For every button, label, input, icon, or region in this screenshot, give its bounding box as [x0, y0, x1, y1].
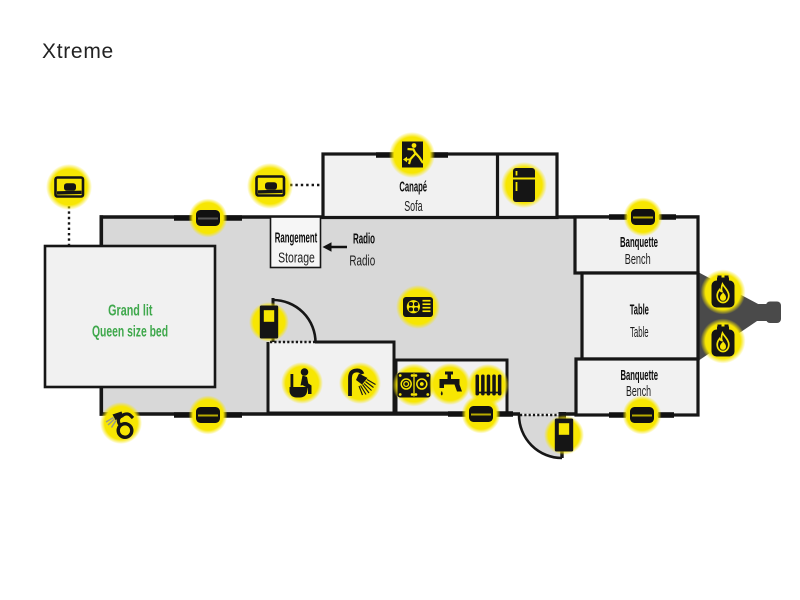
svg-text:Sofa: Sofa [404, 198, 422, 215]
svg-text:Grand lit: Grand lit [108, 301, 153, 319]
svg-text:Table: Table [630, 301, 649, 319]
svg-text:Radio: Radio [353, 230, 375, 247]
svg-text:Queen size bed: Queen size bed [92, 322, 168, 340]
svg-text:Xtreme: Xtreme [42, 40, 114, 63]
svg-text:Rangement: Rangement [275, 229, 317, 247]
svg-text:Banquette: Banquette [620, 366, 658, 384]
svg-text:Canapé: Canapé [399, 177, 427, 195]
svg-text:Storage: Storage [278, 249, 315, 266]
svg-text:Radio: Radio [349, 253, 375, 270]
svg-text:Bench: Bench [625, 251, 651, 268]
svg-text:Table: Table [630, 323, 649, 341]
